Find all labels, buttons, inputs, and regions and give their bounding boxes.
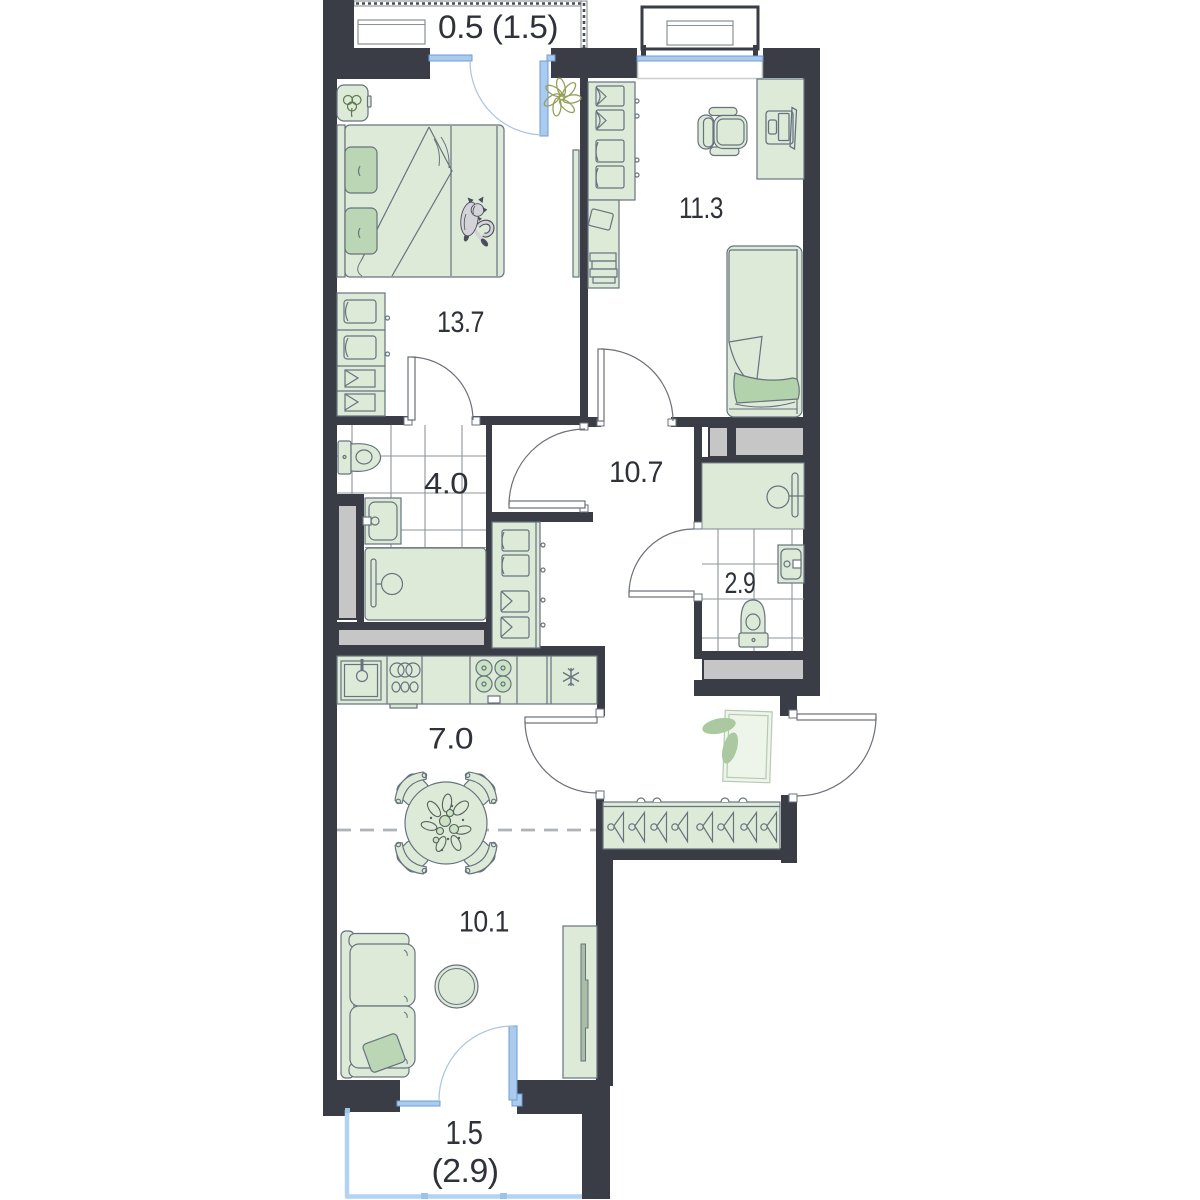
svg-text:11.3: 11.3 xyxy=(679,192,723,225)
svg-text:13.7: 13.7 xyxy=(437,306,484,339)
svg-text:4.0: 4.0 xyxy=(424,468,468,501)
svg-text:10.1: 10.1 xyxy=(459,906,509,939)
svg-text:(2.9): (2.9) xyxy=(432,1152,499,1189)
svg-text:2.9: 2.9 xyxy=(725,567,756,600)
svg-text:10.7: 10.7 xyxy=(609,456,663,489)
svg-text:1.5: 1.5 xyxy=(446,1114,483,1151)
svg-text:7.0: 7.0 xyxy=(428,723,473,756)
svg-text:0.5 (1.5): 0.5 (1.5) xyxy=(438,9,558,45)
